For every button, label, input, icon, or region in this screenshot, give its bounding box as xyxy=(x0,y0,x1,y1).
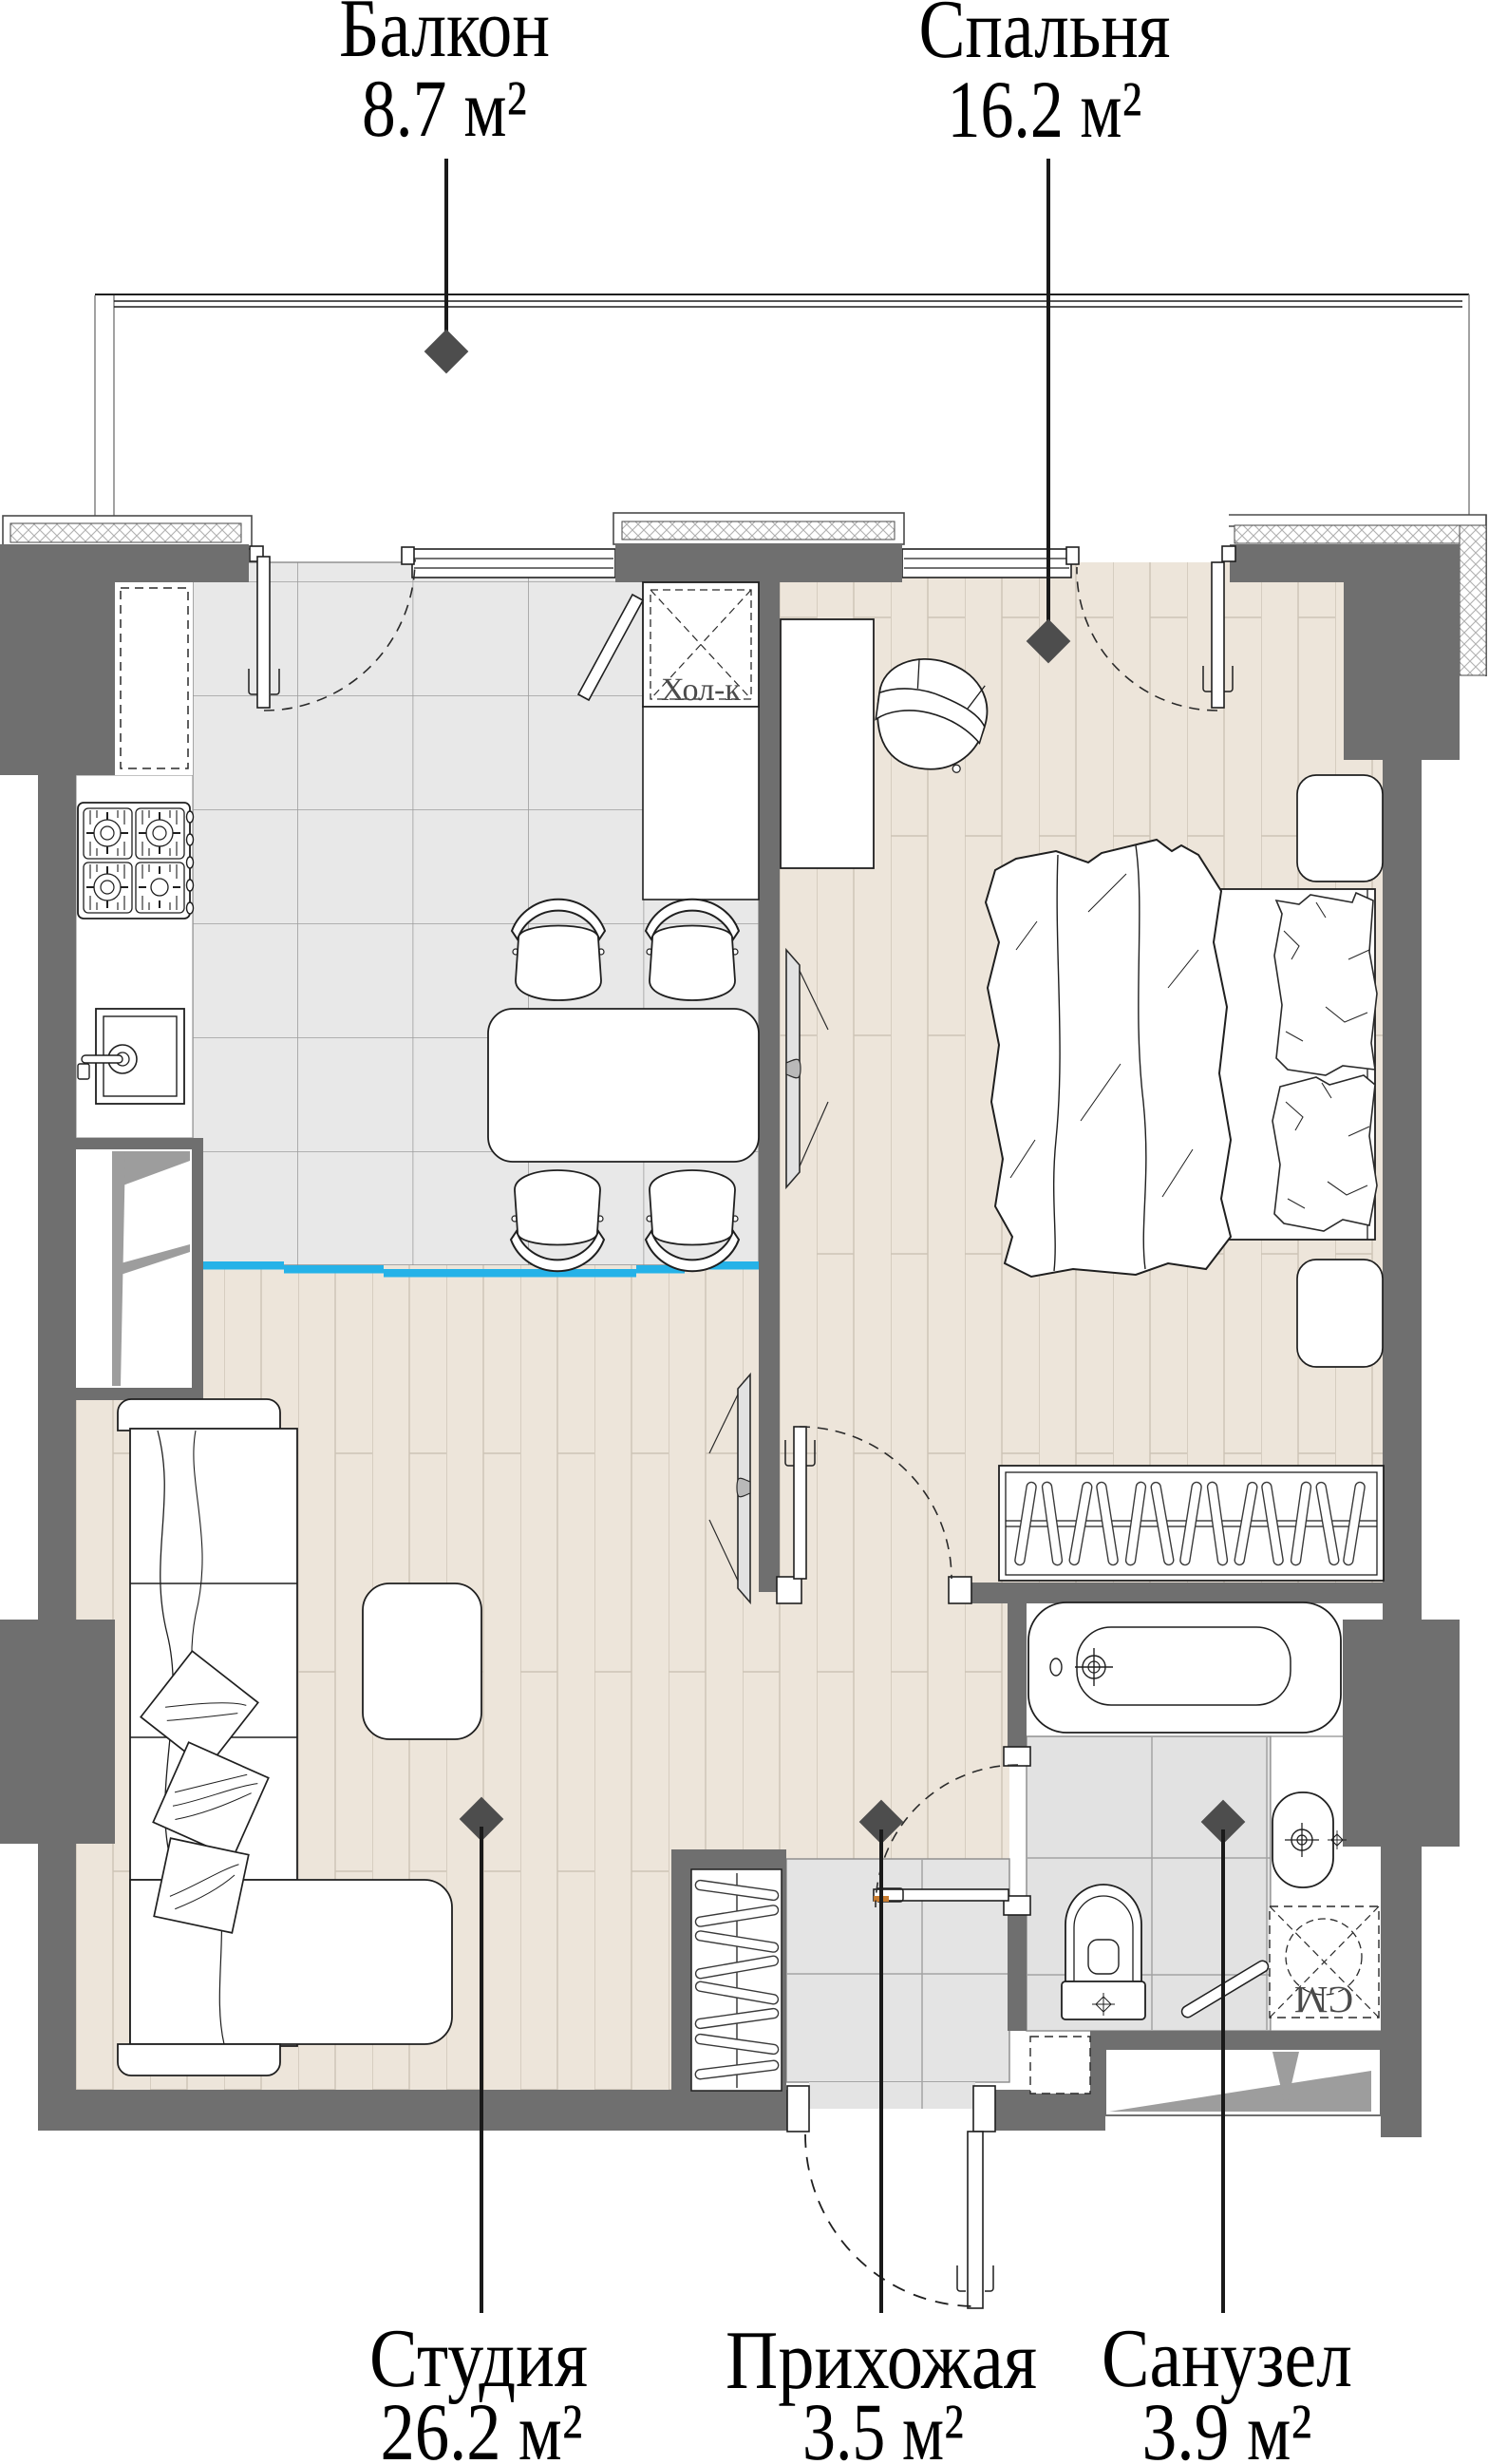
svg-text:Хол-к: Хол-к xyxy=(661,673,741,708)
svg-text:16.2 м²: 16.2 м² xyxy=(948,64,1142,155)
svg-text:3.5 м²: 3.5 м² xyxy=(802,2386,964,2464)
svg-text:3.9 м²: 3.9 м² xyxy=(1142,2386,1312,2464)
svg-text:8.7 м²: 8.7 м² xyxy=(362,63,527,154)
svg-text:26.2 м²: 26.2 м² xyxy=(381,2386,583,2464)
svg-text:СМ: СМ xyxy=(1294,1979,1353,2021)
